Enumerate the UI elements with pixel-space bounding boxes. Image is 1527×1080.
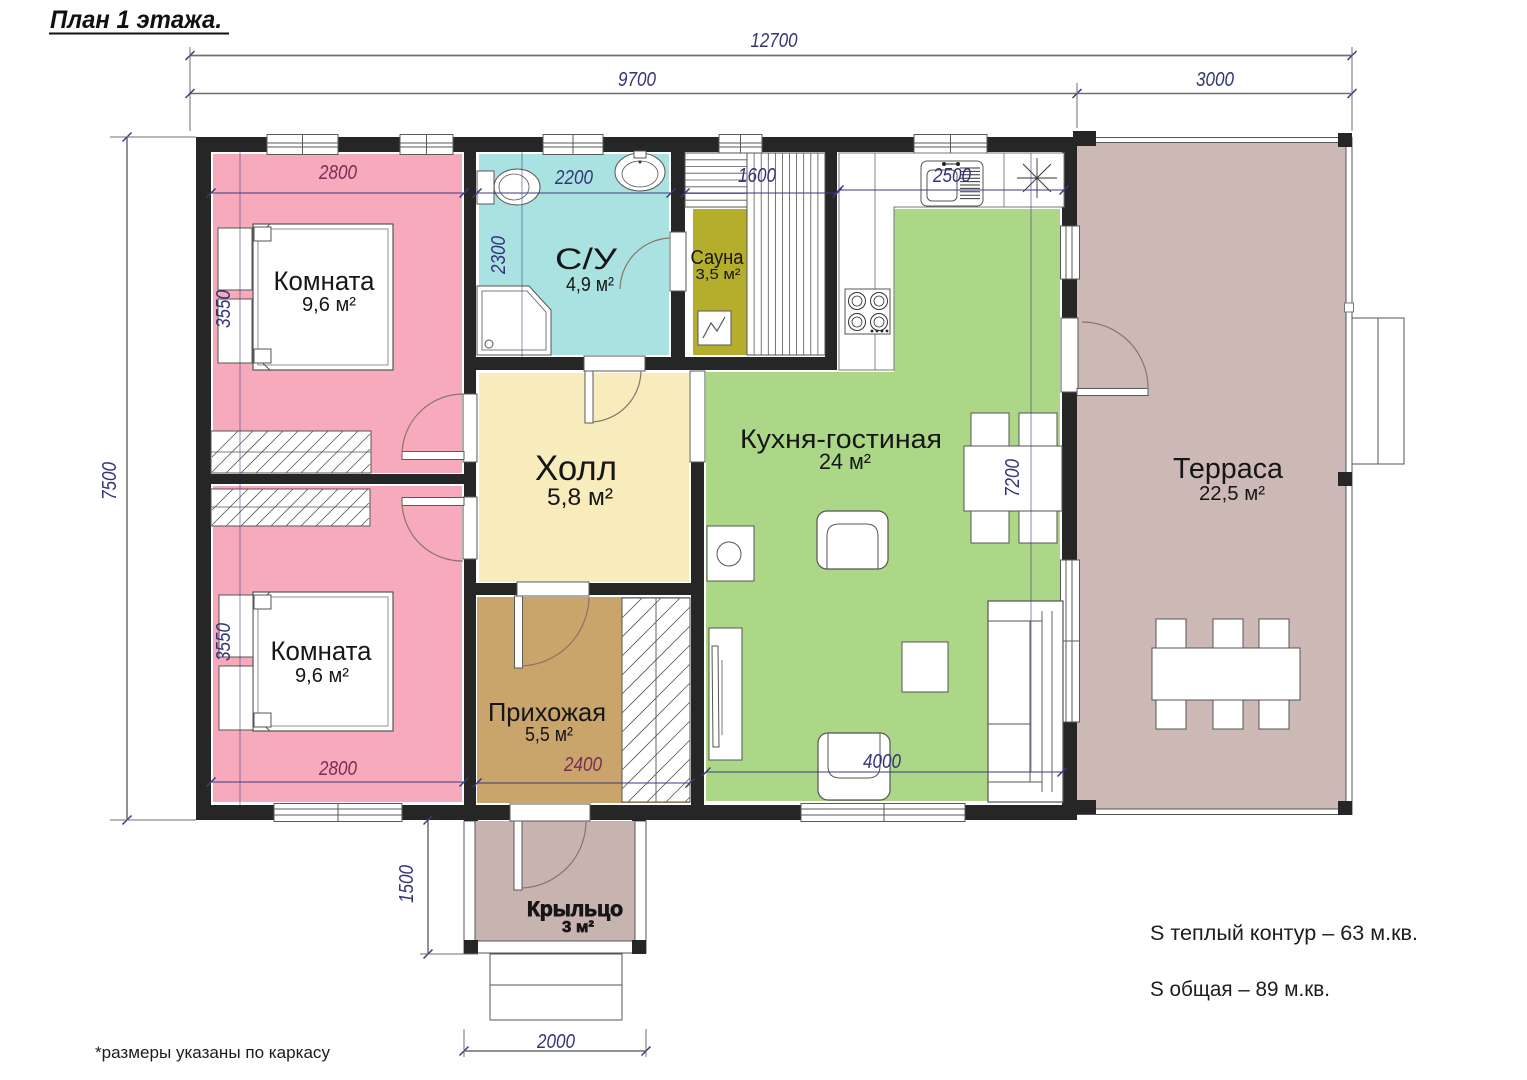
svg-text:2800: 2800 <box>318 758 357 780</box>
svg-text:С/У: С/У <box>555 243 618 276</box>
svg-text:Крыльцо: Крыльцо <box>527 898 623 921</box>
svg-text:1500: 1500 <box>396 865 418 903</box>
svg-text:2200: 2200 <box>554 167 593 189</box>
svg-text:Комната: Комната <box>271 636 373 666</box>
svg-text:*размеры указаны по каркасу: *размеры указаны по каркасу <box>95 1043 330 1062</box>
svg-text:3550: 3550 <box>213 623 235 661</box>
svg-text:S общая – 89 м.кв.: S общая – 89 м.кв. <box>1150 977 1330 1001</box>
svg-text:1600: 1600 <box>738 165 776 187</box>
svg-text:2800: 2800 <box>318 162 357 184</box>
svg-text:2400: 2400 <box>563 754 602 776</box>
svg-text:3 м²: 3 м² <box>562 919 594 936</box>
svg-text:3,5 м²: 3,5 м² <box>696 266 741 283</box>
svg-text:9700: 9700 <box>618 69 656 91</box>
svg-text:5,8 м²: 5,8 м² <box>547 484 613 511</box>
svg-text:4,9 м²: 4,9 м² <box>566 274 614 296</box>
svg-text:3550: 3550 <box>213 290 235 328</box>
svg-text:Комната: Комната <box>274 266 376 296</box>
svg-text:S теплый контур – 63 м.кв.: S теплый контур – 63 м.кв. <box>1150 921 1418 945</box>
svg-text:2500: 2500 <box>932 165 971 187</box>
svg-text:4000: 4000 <box>863 751 901 773</box>
svg-text:22,5 м²: 22,5 м² <box>1199 483 1265 505</box>
svg-text:2000: 2000 <box>536 1031 575 1053</box>
svg-text:Холл: Холл <box>535 449 617 488</box>
svg-text:9,6 м²: 9,6 м² <box>295 665 349 687</box>
svg-text:24 м²: 24 м² <box>819 449 871 474</box>
svg-text:5,5 м²: 5,5 м² <box>525 724 573 746</box>
svg-text:Терраса: Терраса <box>1173 453 1284 485</box>
svg-text:3000: 3000 <box>1196 69 1234 91</box>
svg-text:9,6 м²: 9,6 м² <box>302 294 356 316</box>
svg-text:7500: 7500 <box>99 462 121 500</box>
svg-text:План 1 этажа.: План 1 этажа. <box>50 6 222 34</box>
svg-text:7200: 7200 <box>1002 459 1024 497</box>
svg-text:Прихожая: Прихожая <box>488 697 606 727</box>
svg-text:2300: 2300 <box>488 236 510 275</box>
svg-text:12700: 12700 <box>751 30 798 52</box>
